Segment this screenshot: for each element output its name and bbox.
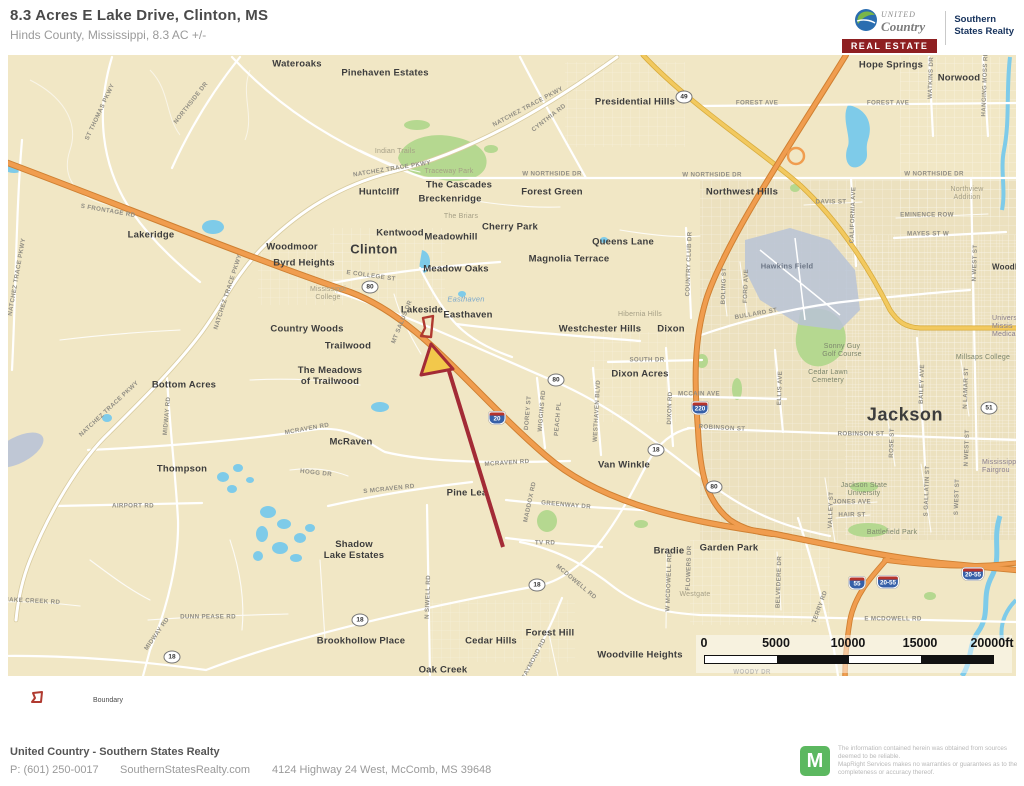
footer-phone: P: (601) 250-0017 [10,764,99,776]
map-place-label: The Meadows of Trailwood [298,366,363,388]
map-place-label: Easthaven [443,311,492,322]
map-place-label: Sonny Guy Golf Course [822,343,862,359]
map-place-label: Easthaven [447,296,484,305]
map-road-label: SOUTH DR [629,356,664,363]
map-place-label: Queens Lane [592,238,654,249]
interstate-shield: 20 [489,412,506,425]
map-road-label: TV RD [535,539,555,546]
map-place-label: Lakeside [401,306,443,317]
map-place-label: Clinton [350,243,398,258]
united-country-logo: UNITED Country REAL ESTATE [842,8,938,53]
map-place-label: Pine Lea [447,489,488,500]
map-road-label: MCRAVEN RD [284,422,330,437]
map-road-label: W NORTHSIDE DR [682,171,742,178]
map-place-label: Brookhollow Place [317,637,405,648]
map-place-label: Hawkins Field [761,263,814,272]
map-place-label: Hibernia Hills [618,311,662,319]
map-place-label: The Briars [444,213,478,221]
map-place-label: Meadow Oaks [423,265,489,276]
map-road-label: W NORTHSIDE DR [904,170,964,177]
real-estate-bar: REAL ESTATE [842,39,938,53]
affiliate-name: Southern States Realty [954,8,1014,39]
map-place-label: Jackson [867,405,943,426]
map-road-label: NATCHEZ TRACE PKWY [78,380,140,439]
highway-shield: 18 [164,651,181,664]
map-road-label: CALIFORNIA AVE [848,187,857,244]
map-road-label: BAILEY AVE [918,364,927,404]
map-place-label: Cherry Park [482,223,538,234]
map-place-label: Cedar Lawn Cemetery [808,369,848,385]
map-place-label: Woodmoor [266,243,318,254]
map-place-label: Kentwood [376,229,424,240]
scale-bar-segments [704,655,994,664]
footer-disclaimer: The information contained herein was obt… [838,745,1018,777]
map-road-label: MCDOWELL RD [554,563,598,601]
map-place-label: Wateroaks [272,60,322,71]
map-road-label: COUNTRY CLUB DR [684,231,693,296]
map-road-label: NATCHEZ TRACE PKWY [8,238,27,317]
map-road-label: N LAMAR ST [962,367,971,409]
map-road-label: DIXON RD [666,391,674,424]
map-place-label: Woodla [992,262,1016,271]
map-legend: Boundary [30,690,123,710]
map-road-label: NORTHSIDE DR [172,81,209,126]
map-place-label: Lakeridge [128,231,175,242]
map-label-layer: WateroaksPinehaven EstatesPresidential H… [8,55,1016,676]
map-road-label: FORD AVE [742,269,750,303]
map-road-label: S FRONTAGE RD [80,203,136,220]
map-place-label: Battlefield Park [867,529,917,537]
map-road-label: EMINENCE ROW [900,211,954,218]
map-place-label: Forest Green [521,188,583,199]
map-road-label: FOREST AVE [736,99,778,106]
map-place-label: Meadowhill [424,233,477,244]
map-place-label: Oak Creek [419,666,468,676]
map-road-label: HOGG DR [300,468,333,478]
map-road-label: NATCHEZ TRACE PKWY [492,85,565,128]
map-place-label: Northwest Hills [706,188,778,199]
map-road-label: CYNTHIA RD [530,102,567,133]
map-place-label: Byrd Heights [273,259,335,270]
footer-website: SouthernStatesRealty.com [120,764,250,776]
map-road-label: W MCDOWELL RD [664,552,673,611]
highway-shield: 18 [352,614,369,627]
highway-shield: 80 [362,281,379,294]
map-place-label: Northview Addition [951,186,984,202]
map-place-label: Cedar Hills [465,637,517,648]
map-place-label: The Cascades [426,181,492,192]
map-place-label: Millsaps College [956,354,1010,362]
map-road-label: BULLARD ST [734,307,778,321]
map-road-label: AIRPORT RD [112,502,154,509]
scale-label: 5000 [762,636,790,650]
scale-label: 15000 [903,636,938,650]
map-place-label: McRaven [329,438,372,449]
map-place-label: Shadow Lake Estates [324,540,385,562]
highway-shield: 18 [529,579,546,592]
map-place-label: Pinehaven Estates [341,69,428,80]
map-place-label: Van Winkle [598,461,650,472]
map-place-label: Norwood [938,74,981,85]
brand-logos: UNITED Country REAL ESTATE Southern Stat… [842,8,1014,53]
map-road-label: S MCRAVEN RD [363,483,415,495]
flyer-page: 8.3 Acres E Lake Drive, Clinton, MS Hind… [0,0,1024,786]
highway-shield: 80 [706,481,723,494]
map-place-label: Universi Missis Medical C [992,315,1016,339]
map-road-label: ROSE ST [888,428,896,458]
map-road-label: E MCDOWELL RD [864,615,921,622]
header: 8.3 Acres E Lake Drive, Clinton, MS Hind… [10,7,268,42]
map-place-label: Huntcliff [359,188,399,199]
scale-bar: 05000100001500020000ft [696,635,1012,673]
map-place-label: Bradie [654,547,685,558]
map-road-label: DOREY ST [523,396,533,431]
map-place-label: Dixon [657,325,684,336]
map-place-label: Mississippi Fairgrou [982,459,1016,475]
united-country-wordmark: UNITED Country [881,10,925,35]
scale-label: 10000 [831,636,866,650]
interstate-shield: 20-55 [962,568,984,581]
map-place-label: Mississippi College [310,286,346,302]
map-road-label: FLOWERS DR [685,545,694,590]
map-place-label: Garden Park [700,544,759,555]
map-road-label: MT SALUS DR [390,299,414,344]
map-place-label: Jackson State University [841,482,888,498]
map-road-label: MCRAVEN RD [484,458,529,468]
map-road-label: HAIR ST [838,511,865,518]
boundary-legend-icon [30,690,45,710]
scale-label: 20000ft [970,636,1013,650]
map-road-label: N WEST ST [971,244,979,281]
boundary-legend-label: Boundary [93,697,123,704]
map-road-label: RAYMOND RD [520,637,548,676]
highway-shield: 49 [676,91,693,104]
page-title: 8.3 Acres E Lake Drive, Clinton, MS [10,7,268,24]
interstate-shield: 20-55 [877,576,899,589]
map-road-label: W NORTHSIDE DR [522,170,582,177]
map-place-label: Presidential Hills [595,98,675,109]
map-road-label: JONES AVE [833,498,871,505]
map-place-label: Bottom Acres [152,381,216,392]
map-place-label: Woodville Heights [597,651,683,662]
map-road-label: VALLEY ST [827,492,835,529]
footer-address: 4124 Highway 24 West, McComb, MS 39648 [272,764,491,776]
map-place-label: Indian Trails [375,148,415,156]
map-road-label: N WEST ST [963,429,971,466]
map-road-label: PEACH PL [553,402,563,437]
map-road-label: WATKINS DR [927,57,936,99]
map-road-label: NATCHEZ TRACE PKWY [212,253,243,330]
map-road-label: MAYES ST W [907,230,949,237]
map-place-label: Thompson [157,465,207,476]
mapright-logo: M [800,746,830,776]
map-road-label: MIDWAY RD [162,396,172,435]
globe-icon [854,8,878,37]
map-road-label: TERRY RD [811,590,829,624]
map-place-label: Westchester Hills [559,325,641,336]
map-place-label: Magnolia Terrace [529,255,610,266]
map-place-label: Traceway Park [424,168,473,176]
map-road-label: BOLING ST [720,267,728,304]
map-road-label: ST THOMAS PKWY [84,83,117,142]
map-road-label: SNAKE CREEK RD [8,596,60,606]
highway-shield: 18 [648,444,665,457]
map-place-label: Breckenridge [418,195,481,206]
map-road-label: S WEST ST [953,479,961,516]
map-road-label: BELVEDERE DR [775,556,784,608]
map-road-label: ROBINSON ST [838,430,885,437]
map-road-label: DUNN PEASE RD [180,613,236,620]
map-road-label: GREENWAY DR [541,499,591,510]
map-road-label: S GALLATIN ST [923,465,932,516]
highway-shield: 80 [548,374,565,387]
map-canvas: WateroaksPinehaven EstatesPresidential H… [8,55,1016,676]
map-road-label: N SIWELL RD [424,575,433,619]
interstate-shield: 55 [849,577,866,590]
map-road-label: ROBINSON ST [698,423,745,433]
map-place-label: Forest Hill [526,629,575,640]
map-road-label: DAVIS ST [816,198,847,205]
map-place-label: Westgate [679,591,710,599]
scale-label: 0 [701,636,708,650]
brand-divider [945,11,946,45]
map-place-label: Trailwood [325,342,371,353]
map-road-label: WESTHAVEN BLVD [592,380,602,442]
map-place-label: Hope Springs [859,61,923,72]
interstate-shield: 220 [692,402,709,415]
map-road-label: NATCHEZ TRACE PKWY [353,159,432,178]
map-road-label: FOREST AVE [867,99,909,106]
map-place-label: Country Woods [270,325,343,336]
map-road-label: MIDWAY RD [143,616,171,652]
map-road-label: WIGGINS RD [537,390,548,432]
map-place-label: Dixon Acres [611,370,668,381]
page-subtitle: Hinds County, Mississippi, 8.3 AC +/- [10,28,268,42]
map-road-label: MADDOX RD [522,481,538,523]
map-road-label: MCCAIN AVE [678,390,720,397]
highway-shield: 51 [981,402,998,415]
map-road-label: ELLIS AVE [776,371,784,406]
map-road-label: HANGING MOSS RD [980,55,989,117]
